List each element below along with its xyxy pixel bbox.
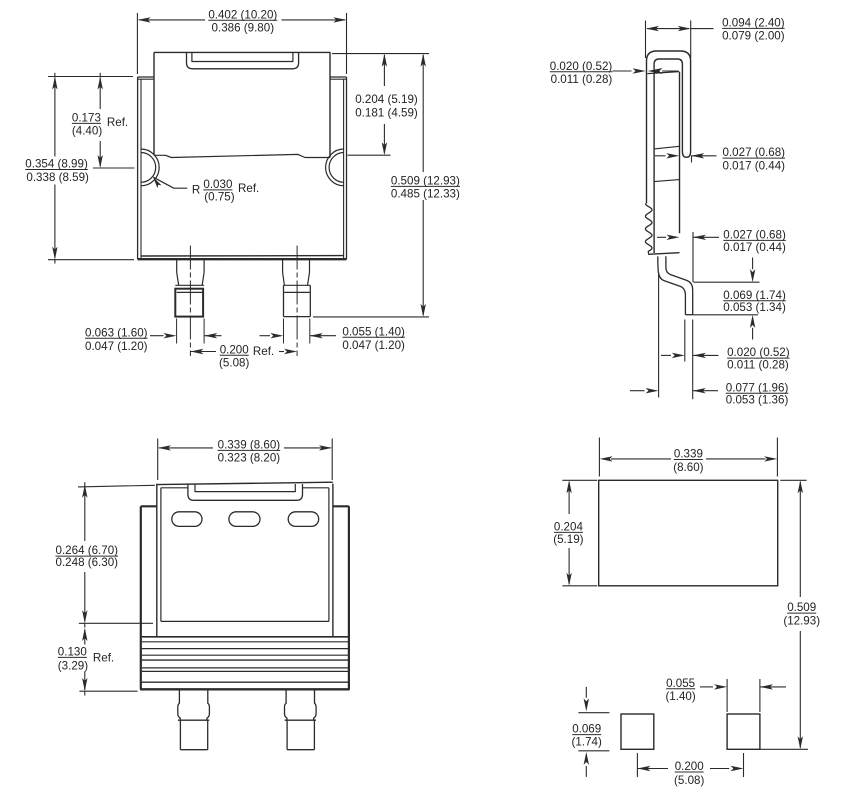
svg-text:0.030: 0.030 <box>203 178 232 191</box>
svg-text:0.339 (8.60): 0.339 (8.60) <box>218 439 281 452</box>
svg-text:(5.08): (5.08) <box>674 774 704 787</box>
svg-text:0.354 (8.99): 0.354 (8.99) <box>25 158 88 171</box>
svg-text:0.055 (1.40): 0.055 (1.40) <box>342 325 405 338</box>
svg-text:0.017 (0.44): 0.017 (0.44) <box>723 160 786 173</box>
svg-text:0.338 (8.59): 0.338 (8.59) <box>26 171 89 184</box>
svg-text:0.204: 0.204 <box>554 521 584 534</box>
svg-text:(4.40): (4.40) <box>72 124 102 137</box>
svg-text:0.053 (1.34): 0.053 (1.34) <box>723 301 786 314</box>
svg-text:0.020 (0.52): 0.020 (0.52) <box>727 346 790 359</box>
svg-text:Ref.: Ref. <box>93 651 114 664</box>
svg-text:(1.74): (1.74) <box>572 736 602 749</box>
svg-text:0.077 (1.96): 0.077 (1.96) <box>726 381 789 394</box>
svg-text:(3.29): (3.29) <box>58 659 88 672</box>
svg-text:0.017 (0.44): 0.017 (0.44) <box>723 241 786 254</box>
svg-text:0.020 (0.52): 0.020 (0.52) <box>550 60 613 73</box>
svg-text:(5.19): (5.19) <box>553 533 583 546</box>
svg-text:0.485 (12.33): 0.485 (12.33) <box>391 188 460 201</box>
svg-text:0.173: 0.173 <box>72 112 101 125</box>
svg-text:0.509: 0.509 <box>787 601 816 614</box>
svg-text:0.402 (10.20): 0.402 (10.20) <box>208 8 277 21</box>
svg-text:0.047 (1.20): 0.047 (1.20) <box>342 339 405 352</box>
svg-text:(0.75): (0.75) <box>204 190 234 203</box>
svg-text:0.204 (5.19): 0.204 (5.19) <box>355 93 418 106</box>
svg-text:Ref.: Ref. <box>253 345 274 358</box>
svg-text:0.063 (1.60): 0.063 (1.60) <box>85 326 148 339</box>
svg-text:0.323 (8.20): 0.323 (8.20) <box>218 452 281 465</box>
svg-text:0.200: 0.200 <box>675 760 704 773</box>
svg-text:0.509 (12.93): 0.509 (12.93) <box>391 175 460 188</box>
svg-text:0.079 (2.00): 0.079 (2.00) <box>722 30 785 43</box>
svg-text:0.069 (1.74): 0.069 (1.74) <box>723 289 786 302</box>
svg-text:0.053 (1.36): 0.053 (1.36) <box>726 393 789 406</box>
svg-text:0.011 (0.28): 0.011 (0.28) <box>727 359 789 372</box>
svg-text:0.130: 0.130 <box>58 646 87 659</box>
svg-text:0.200: 0.200 <box>220 343 249 356</box>
svg-text:(12.93): (12.93) <box>783 614 820 627</box>
svg-text:0.248 (6.30): 0.248 (6.30) <box>56 556 119 569</box>
svg-text:(8.60): (8.60) <box>673 461 703 474</box>
svg-text:Ref.: Ref. <box>238 182 259 195</box>
svg-text:0.011 (0.28): 0.011 (0.28) <box>551 73 613 86</box>
svg-text:0.027 (0.68): 0.027 (0.68) <box>723 146 786 159</box>
svg-text:0.047 (1.20): 0.047 (1.20) <box>85 340 148 353</box>
svg-text:0.055: 0.055 <box>666 677 695 690</box>
svg-text:R: R <box>192 184 200 197</box>
svg-text:0.181 (4.59): 0.181 (4.59) <box>355 106 418 119</box>
svg-text:0.069: 0.069 <box>572 723 601 736</box>
svg-text:0.386 (9.80): 0.386 (9.80) <box>212 22 275 35</box>
svg-text:(5.08): (5.08) <box>219 357 249 370</box>
svg-text:0.339: 0.339 <box>674 448 703 461</box>
svg-text:0.027 (0.68): 0.027 (0.68) <box>723 229 786 242</box>
svg-text:(1.40): (1.40) <box>665 690 695 703</box>
svg-text:0.094 (2.40): 0.094 (2.40) <box>722 17 785 30</box>
svg-text:Ref.: Ref. <box>107 116 128 129</box>
